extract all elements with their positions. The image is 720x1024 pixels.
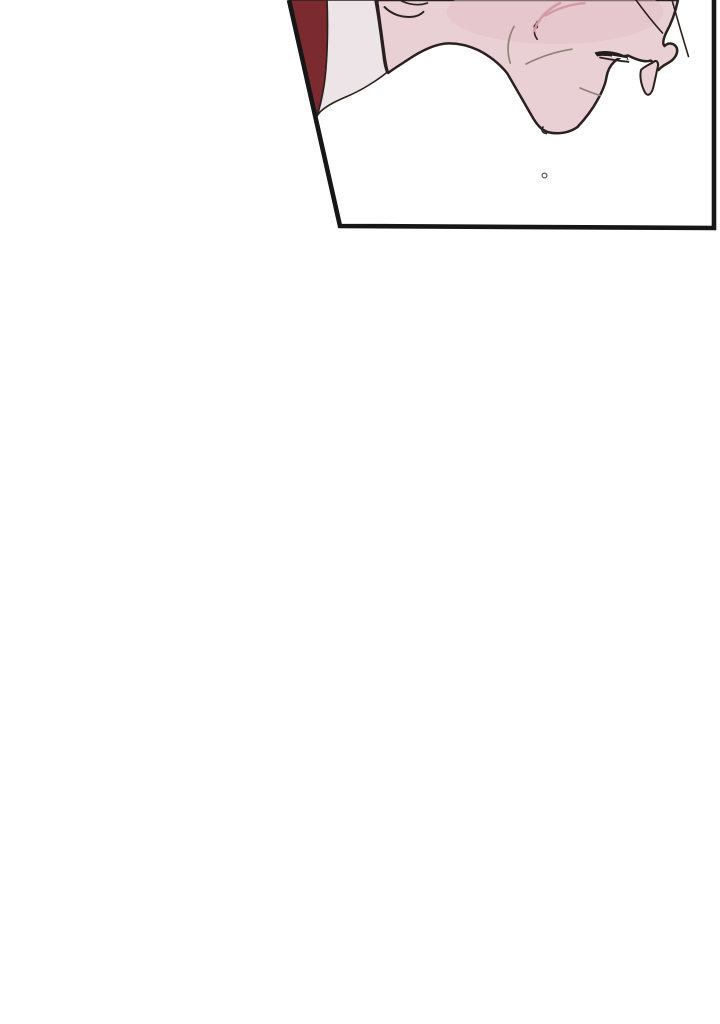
comic-page	[0, 0, 720, 1024]
panel-interior	[289, 0, 714, 228]
comic-panel-art	[0, 0, 720, 1024]
sweat-droplet	[542, 173, 547, 178]
